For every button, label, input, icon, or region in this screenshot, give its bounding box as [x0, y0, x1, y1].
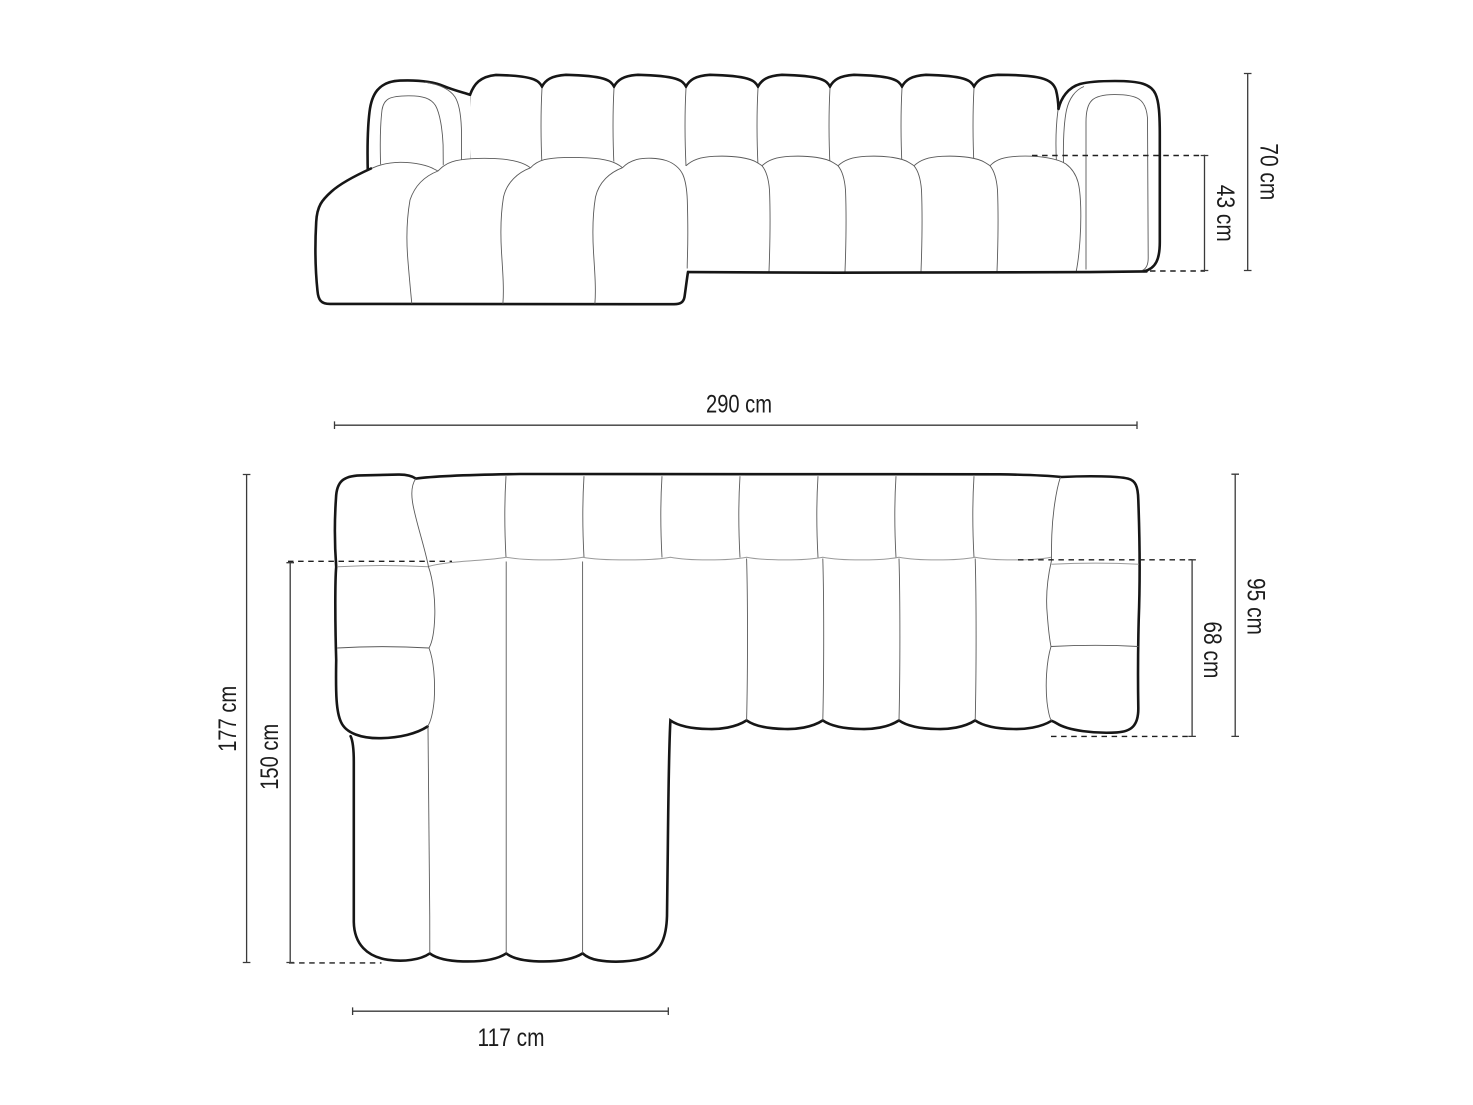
svg-text:150 cm: 150 cm — [256, 724, 284, 790]
svg-text:95 cm: 95 cm — [1241, 578, 1269, 635]
svg-text:68 cm: 68 cm — [1198, 621, 1226, 678]
svg-text:117 cm: 117 cm — [478, 1024, 545, 1052]
svg-text:70 cm: 70 cm — [1254, 143, 1282, 200]
svg-text:290 cm: 290 cm — [706, 391, 772, 419]
svg-text:43 cm: 43 cm — [1211, 185, 1239, 242]
svg-text:177 cm: 177 cm — [214, 686, 242, 752]
